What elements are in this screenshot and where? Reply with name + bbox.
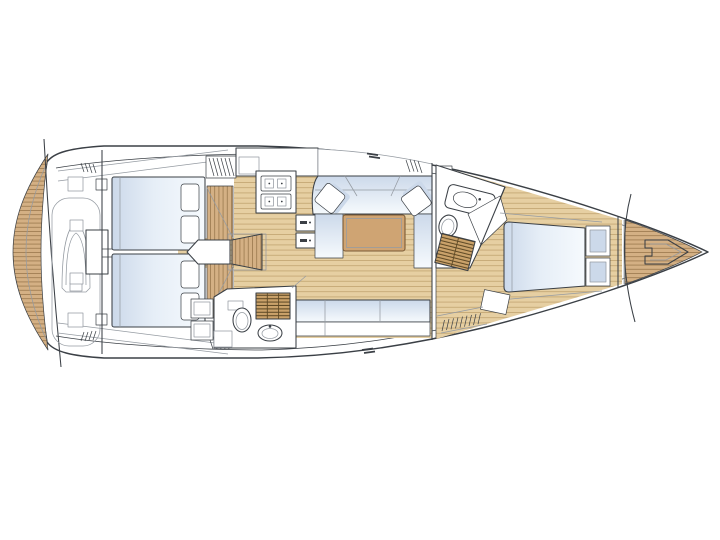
bow [618,194,702,322]
anchor-locker-deck [625,220,702,284]
settee-arm-right [414,214,432,268]
burner [261,194,291,209]
bench-front [296,322,430,336]
drawer-latch [309,240,311,242]
aft-cabin-starboard [112,177,233,250]
burner-dot [268,201,270,203]
dinette [312,149,435,268]
pillow [181,261,199,288]
faucet [269,325,272,328]
garage-hatch-box [86,230,108,274]
head-step [214,331,232,347]
stern-locker [70,273,83,284]
yacht-floor-plan [0,0,720,540]
stern-locker [70,220,83,231]
saloon-bench [296,300,430,336]
burner-frame [261,176,291,191]
bench-cushion [296,300,430,322]
stern-locker [68,313,83,327]
drawer-handle [300,239,307,242]
pillow [181,184,199,211]
burner [261,176,291,191]
louvre-locker [256,293,290,319]
burner-frame [261,194,291,209]
drawer-handle [300,221,307,224]
companionway-stairs [232,234,262,270]
burner-dot [281,201,283,203]
burner-dot [268,183,270,185]
drawer-latch [309,222,311,224]
burner-dot [281,183,283,185]
floor-plan-page [0,0,720,540]
headboard-locker-inner [590,230,606,252]
stern-locker [68,177,83,191]
island-bed [504,222,585,292]
settee-arm-left [315,214,343,258]
saloon-table [343,215,405,251]
pillow [181,216,199,243]
headboard-locker-inner [590,262,606,282]
